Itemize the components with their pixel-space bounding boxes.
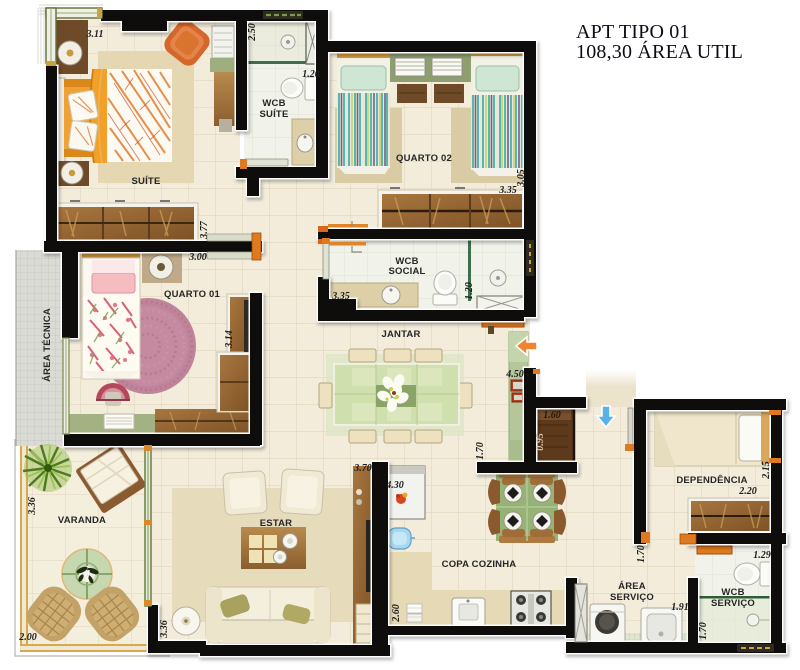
svg-text:108,30 ÁREA UTIL: 108,30 ÁREA UTIL — [576, 40, 743, 63]
svg-text:QUARTO 01: QUARTO 01 — [164, 289, 221, 300]
svg-text:1.60: 1.60 — [543, 410, 561, 421]
svg-text:0.95: 0.95 — [535, 433, 546, 451]
svg-text:1.20: 1.20 — [302, 69, 320, 80]
svg-text:1.20: 1.20 — [464, 282, 475, 300]
svg-text:JANTAR: JANTAR — [381, 329, 420, 340]
svg-text:1.70: 1.70 — [698, 622, 709, 640]
svg-text:SOCIAL: SOCIAL — [388, 266, 425, 277]
svg-text:ÁREA: ÁREA — [618, 581, 646, 592]
svg-text:2.50: 2.50 — [247, 23, 258, 42]
svg-text:2.20: 2.20 — [738, 486, 757, 497]
svg-text:3.36: 3.36 — [27, 497, 38, 516]
svg-text:1.29: 1.29 — [753, 550, 771, 561]
svg-text:SUÍTE: SUÍTE — [132, 176, 161, 187]
svg-text:APT TIPO 01: APT TIPO 01 — [576, 21, 690, 43]
svg-text:DEPENDÊNCIA: DEPENDÊNCIA — [676, 474, 747, 486]
svg-text:ÁREA TÉCNICA: ÁREA TÉCNICA — [42, 308, 53, 382]
svg-text:QUARTO 02: QUARTO 02 — [396, 153, 452, 164]
svg-text:VARANDA: VARANDA — [58, 515, 106, 526]
svg-text:ESTAR: ESTAR — [260, 518, 293, 529]
svg-text:WCB: WCB — [721, 587, 744, 598]
svg-text:2.15: 2.15 — [761, 461, 772, 480]
svg-text:3.70: 3.70 — [353, 463, 372, 474]
svg-text:3.35: 3.35 — [331, 291, 350, 302]
svg-text:3.77: 3.77 — [199, 220, 210, 240]
svg-text:2.00: 2.00 — [18, 632, 37, 643]
svg-text:1.70: 1.70 — [475, 442, 486, 460]
svg-text:1.91: 1.91 — [671, 602, 689, 613]
svg-text:SERVIÇO: SERVIÇO — [610, 592, 654, 603]
svg-text:2.60: 2.60 — [391, 604, 402, 623]
svg-text:4.30: 4.30 — [385, 480, 404, 491]
svg-text:3.05: 3.05 — [516, 169, 527, 188]
svg-text:3.11: 3.11 — [86, 29, 104, 40]
svg-text:SUÍTE: SUÍTE — [260, 109, 289, 120]
svg-text:1.70: 1.70 — [636, 545, 647, 563]
svg-text:4.50: 4.50 — [505, 369, 524, 380]
svg-text:3.00: 3.00 — [188, 252, 207, 263]
svg-text:3.35: 3.35 — [498, 185, 517, 196]
svg-text:3.36: 3.36 — [159, 620, 170, 639]
svg-text:3.14: 3.14 — [224, 330, 235, 349]
svg-text:WCB: WCB — [262, 98, 285, 109]
svg-text:SERVIÇO: SERVIÇO — [711, 598, 755, 609]
svg-text:COPA COZINHA: COPA COZINHA — [442, 559, 517, 570]
